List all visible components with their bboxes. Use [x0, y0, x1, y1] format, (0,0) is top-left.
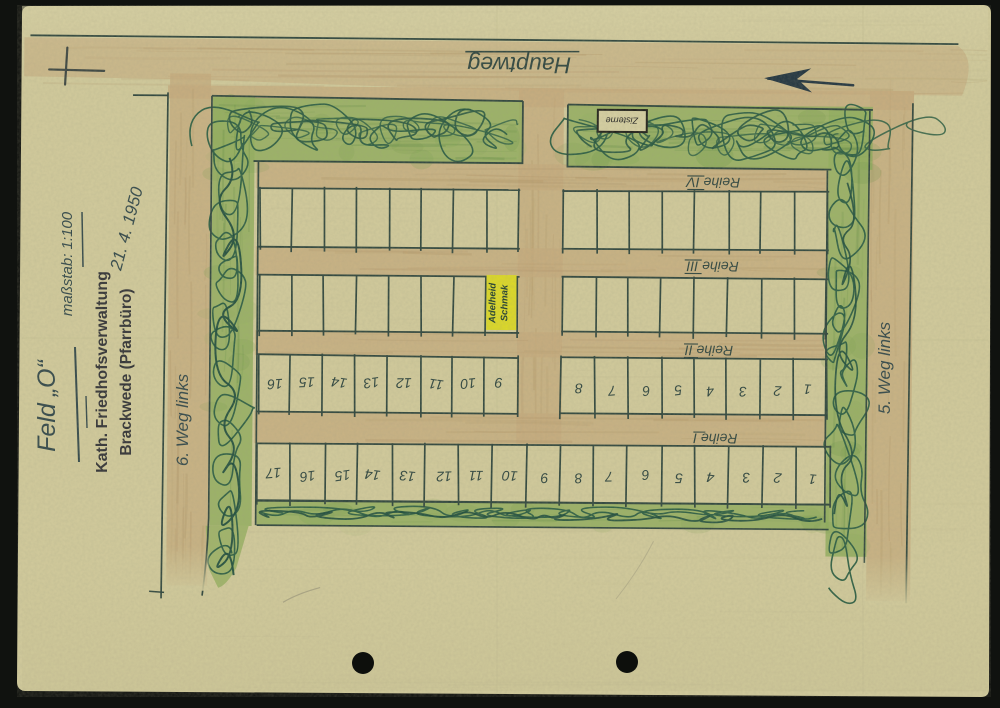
svg-text:maßstab: 1:100: maßstab: 1:100	[59, 211, 76, 316]
svg-text:Kath. Friedhofsverwaltung: Kath. Friedhofsverwaltung	[94, 271, 111, 473]
svg-text:16: 16	[267, 376, 284, 393]
svg-text:5: 5	[675, 470, 683, 486]
svg-text:Feld „O“: Feld „O“	[33, 358, 61, 451]
svg-text:Brackwede (Pfarrbüro): Brackwede (Pfarrbüro)	[118, 288, 135, 455]
svg-text:15: 15	[334, 467, 352, 485]
svg-text:13: 13	[399, 468, 416, 485]
svg-text:Reihe III: Reihe III	[686, 258, 738, 274]
svg-text:12: 12	[436, 468, 452, 484]
svg-text:Hauptweg: Hauptweg	[467, 52, 571, 79]
svg-text:9: 9	[494, 375, 502, 391]
svg-text:15: 15	[299, 374, 315, 390]
svg-text:1: 1	[808, 471, 817, 488]
svg-text:1: 1	[803, 381, 811, 397]
svg-text:6. Weg links: 6. Weg links	[173, 373, 192, 466]
svg-text:3: 3	[738, 384, 747, 400]
svg-text:Adelheid: Adelheid	[487, 283, 498, 324]
svg-text:Reihe II: Reihe II	[685, 342, 733, 358]
svg-text:7: 7	[604, 469, 613, 485]
svg-text:2: 2	[773, 470, 783, 487]
svg-text:14: 14	[364, 466, 381, 484]
svg-text:Reihe IV: Reihe IV	[685, 174, 740, 190]
svg-text:11: 11	[469, 468, 484, 484]
svg-text:5. Weg links: 5. Weg links	[875, 321, 894, 414]
svg-text:10: 10	[502, 468, 518, 485]
svg-text:17: 17	[264, 465, 282, 482]
svg-text:Schmak: Schmak	[499, 284, 510, 321]
svg-text:11: 11	[428, 376, 444, 394]
svg-text:8: 8	[575, 381, 583, 397]
svg-text:Zisterne: Zisterne	[606, 115, 640, 125]
svg-text:16: 16	[299, 467, 317, 485]
svg-text:2: 2	[773, 383, 783, 399]
svg-text:12: 12	[396, 375, 412, 391]
svg-text:Reihe I: Reihe I	[693, 431, 738, 447]
svg-text:13: 13	[362, 374, 380, 392]
svg-text:14: 14	[330, 374, 348, 392]
svg-text:10: 10	[460, 375, 477, 392]
